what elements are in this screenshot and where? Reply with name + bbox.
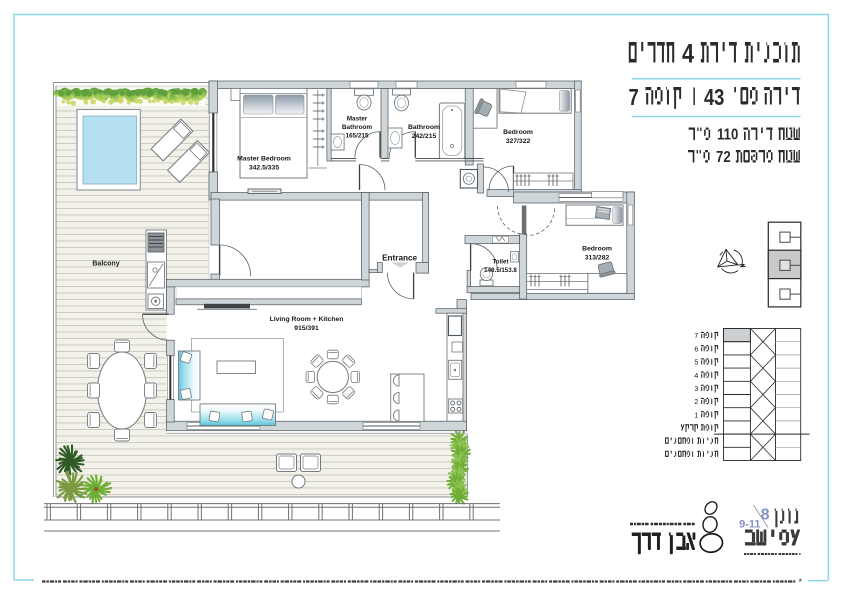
svg-text:Entrance: Entrance [382, 254, 417, 263]
svg-text:327/322: 327/322 [506, 138, 531, 145]
svg-text:4: 4 [694, 373, 698, 380]
svg-text:342.5/335: 342.5/335 [249, 165, 279, 172]
svg-text:Master Bedroom: Master Bedroom [237, 156, 291, 163]
svg-text:165/215: 165/215 [345, 133, 369, 140]
svg-text:Bedroom: Bedroom [503, 129, 533, 136]
svg-text:6: 6 [694, 346, 698, 353]
svg-text:313/282: 313/282 [585, 255, 610, 262]
svg-text:2: 2 [694, 399, 698, 406]
svg-text:72: 72 [716, 149, 731, 166]
svg-text:Balcony: Balcony [92, 261, 119, 268]
svg-text:5: 5 [694, 360, 698, 367]
svg-text:Toilet: Toilet [492, 259, 508, 266]
svg-text:Bathroom: Bathroom [342, 124, 372, 131]
svg-text:8: 8 [761, 507, 770, 524]
svg-text:7: 7 [628, 85, 638, 110]
svg-text:Living Room + Kitchen: Living Room + Kitchen [270, 316, 344, 323]
svg-text:*: * [798, 577, 802, 587]
svg-text:9-11: 9-11 [739, 519, 760, 531]
svg-text:43: 43 [704, 85, 724, 110]
svg-text:148.5/153.8: 148.5/153.8 [484, 267, 517, 274]
svg-text:Bedroom: Bedroom [582, 246, 612, 253]
svg-text:242/215: 242/215 [412, 133, 437, 140]
svg-text:915/391: 915/391 [294, 325, 319, 332]
svg-text:3: 3 [694, 386, 698, 393]
svg-text:4: 4 [682, 39, 694, 69]
svg-text:110: 110 [717, 127, 738, 144]
svg-text:1: 1 [694, 412, 698, 419]
svg-text:7: 7 [694, 333, 698, 340]
svg-text:Master: Master [347, 116, 368, 123]
svg-text:Bathroom: Bathroom [408, 124, 440, 131]
